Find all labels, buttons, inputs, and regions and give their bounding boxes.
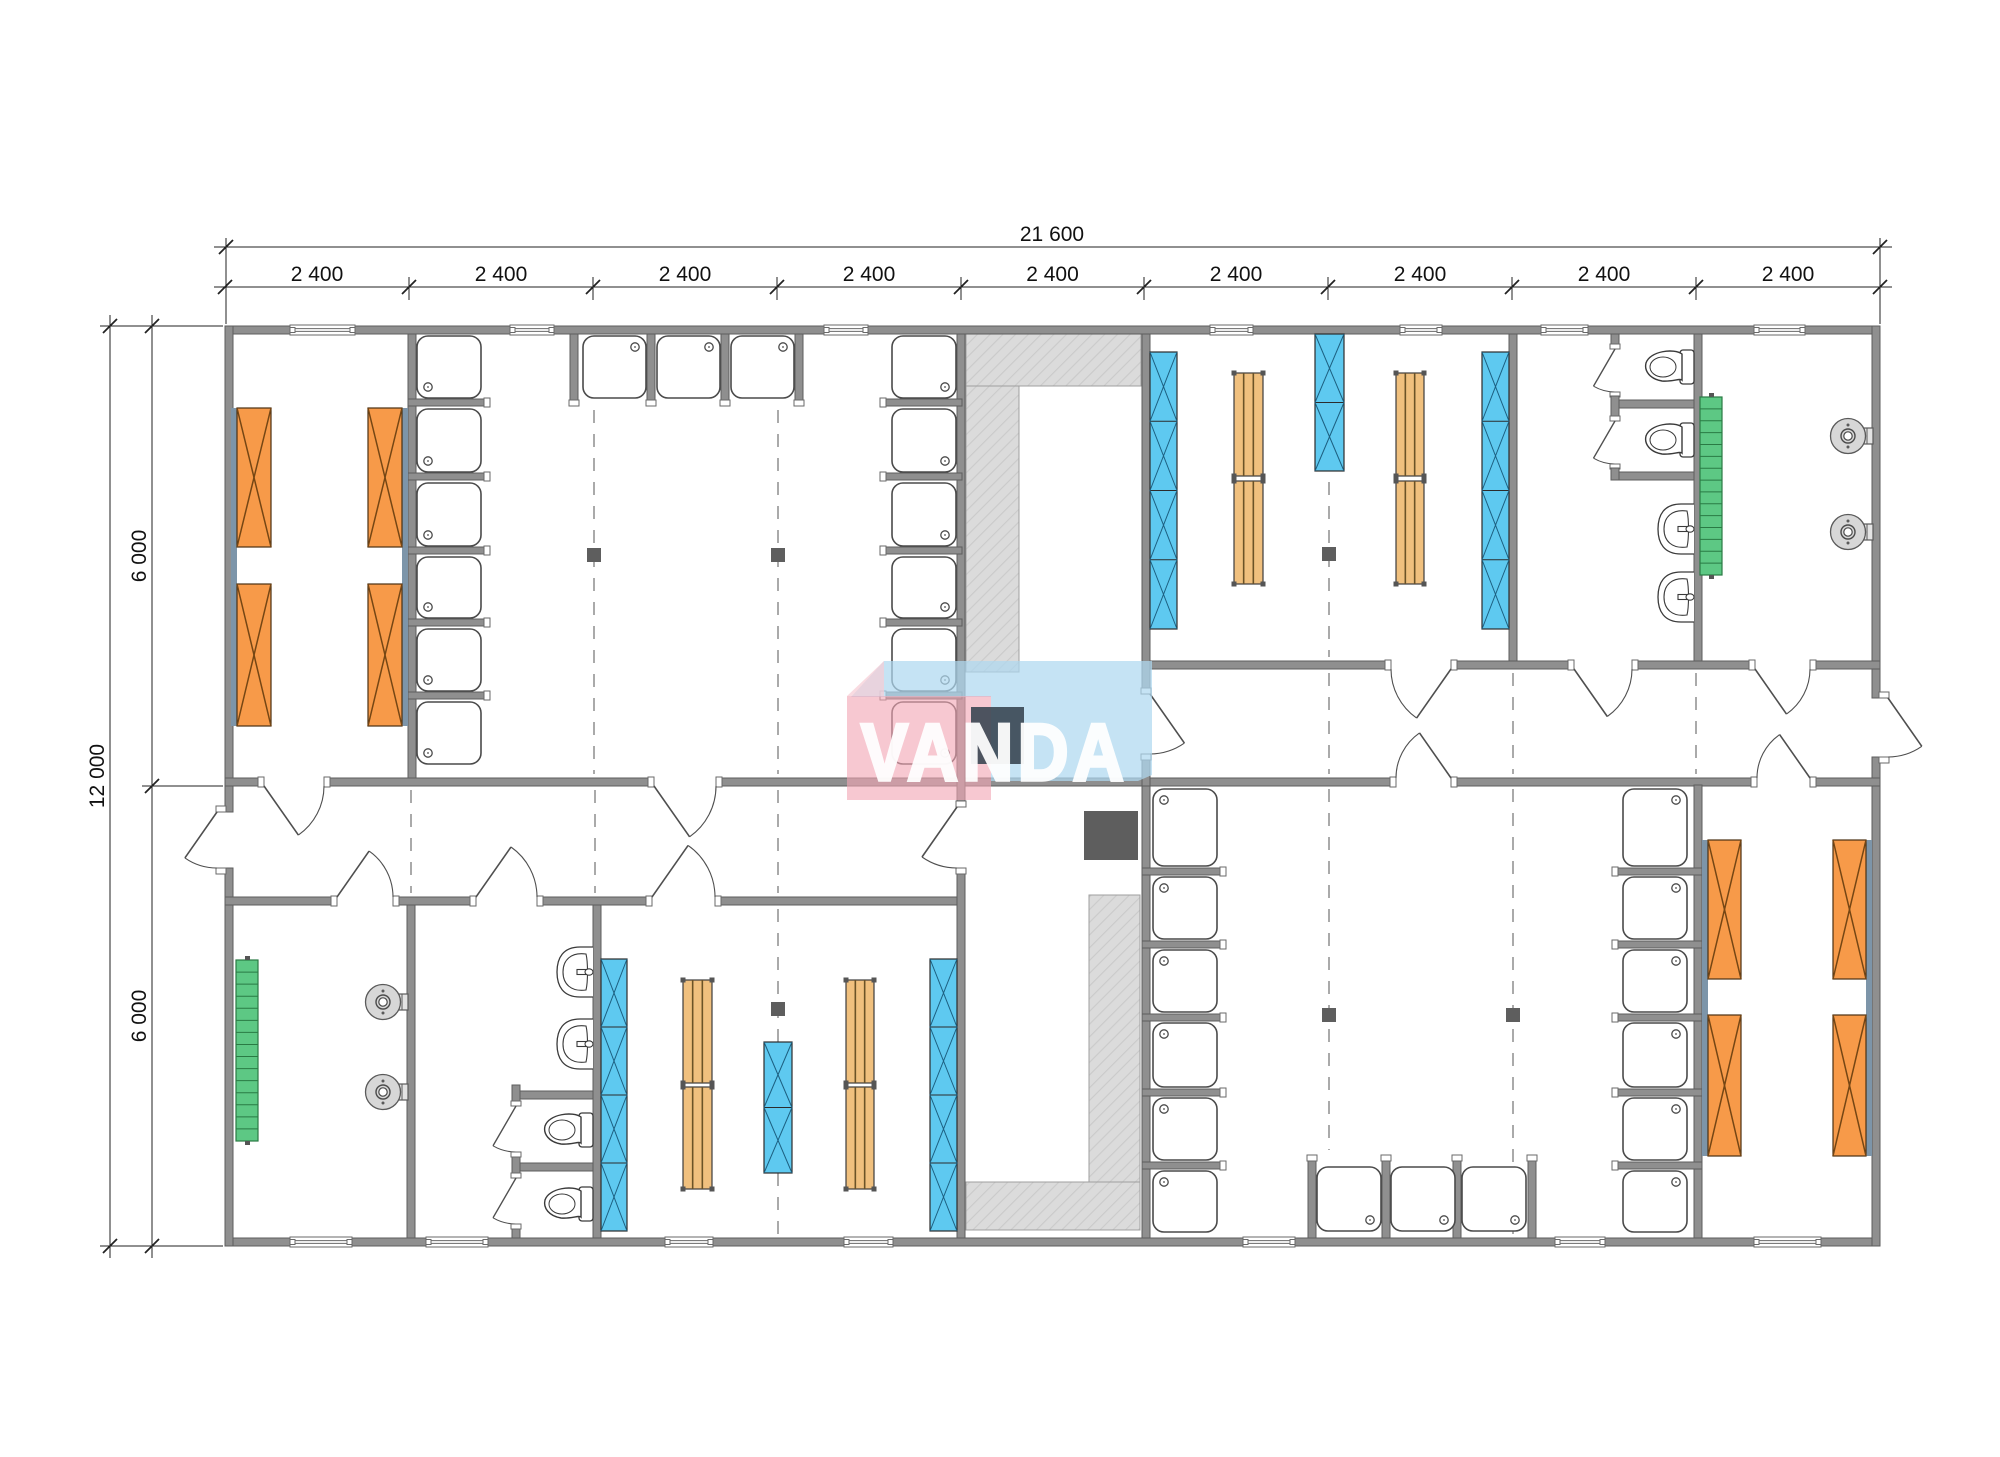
svg-text:2 400: 2 400 [291, 263, 344, 286]
svg-text:2 400: 2 400 [1578, 263, 1631, 286]
svg-text:12 000: 12 000 [86, 744, 109, 808]
svg-text:6 000: 6 000 [128, 530, 151, 583]
svg-text:2 400: 2 400 [475, 263, 528, 286]
svg-text:VANDA: VANDA [861, 707, 1128, 798]
svg-text:2 400: 2 400 [1026, 263, 1079, 286]
svg-text:2 400: 2 400 [1210, 263, 1263, 286]
svg-text:2 400: 2 400 [1394, 263, 1447, 286]
svg-text:2 400: 2 400 [1762, 263, 1815, 286]
svg-text:2 400: 2 400 [659, 263, 712, 286]
svg-text:21 600: 21 600 [1020, 223, 1084, 246]
svg-text:6 000: 6 000 [128, 990, 151, 1043]
svg-text:2 400: 2 400 [843, 263, 896, 286]
